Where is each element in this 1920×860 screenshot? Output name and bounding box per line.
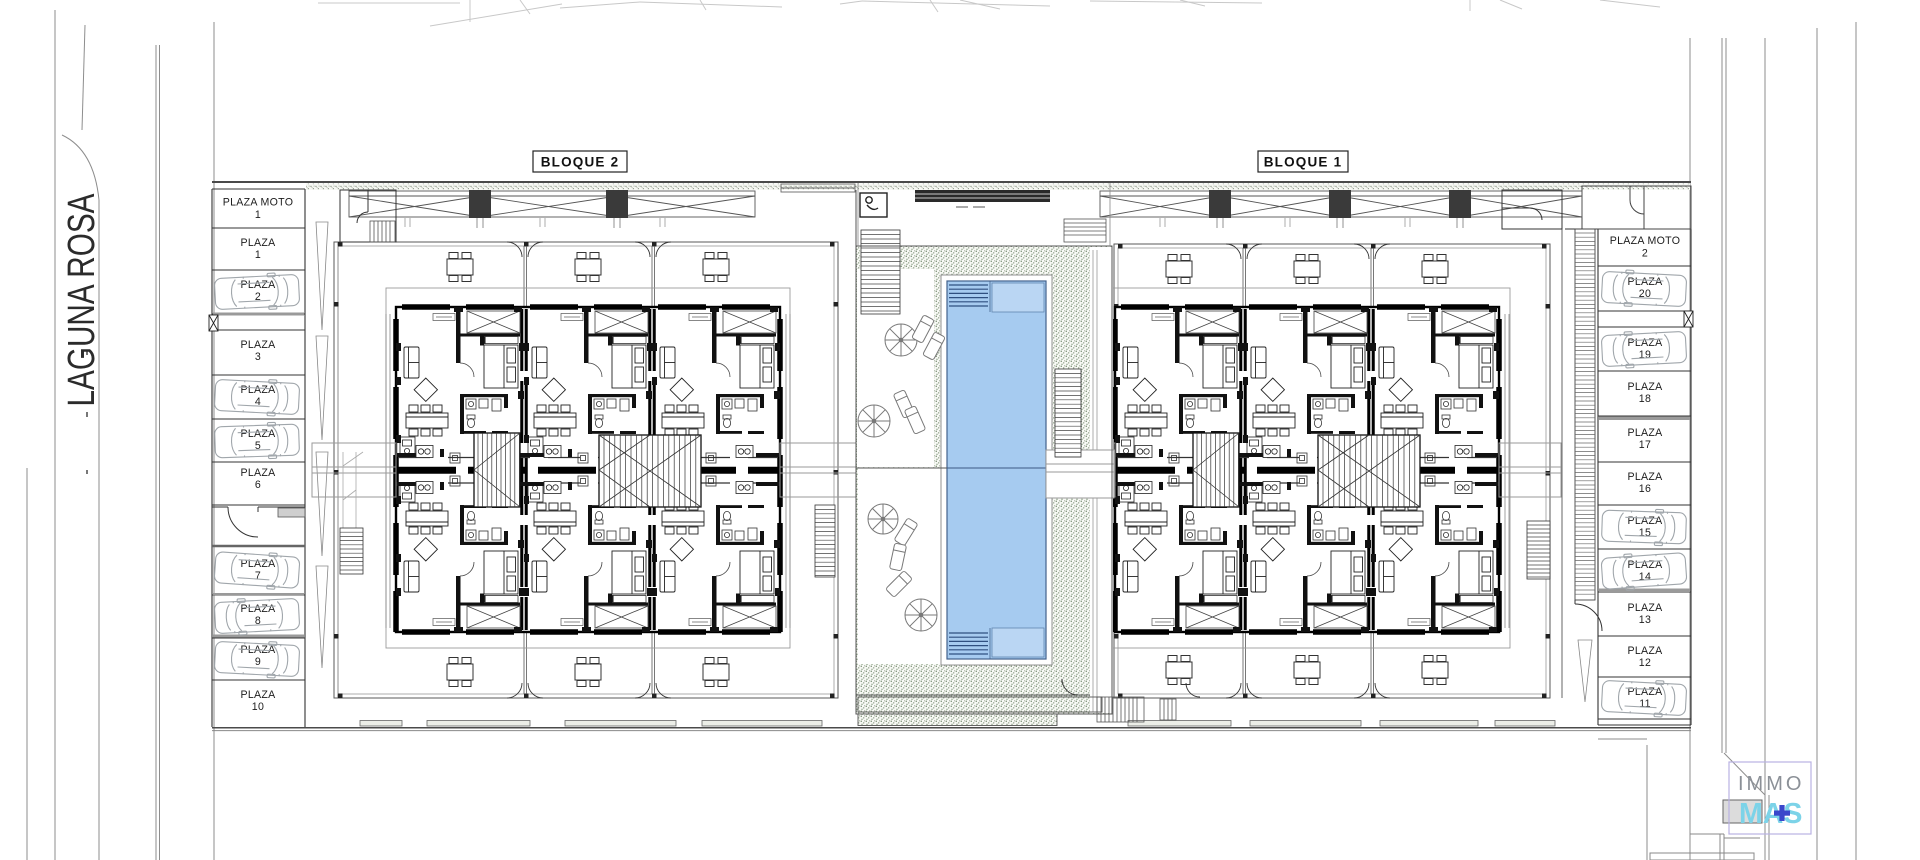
svg-text:2: 2	[1642, 248, 1648, 260]
svg-text:1: 1	[255, 249, 261, 261]
svg-text:PLAZA: PLAZA	[1627, 471, 1663, 483]
svg-text:15: 15	[1639, 527, 1651, 539]
svg-text:PLAZA: PLAZA	[1627, 686, 1663, 698]
svg-text:PLAZA: PLAZA	[1627, 427, 1663, 439]
svg-text:PLAZA: PLAZA	[1627, 381, 1663, 393]
svg-text:PLAZA: PLAZA	[1627, 602, 1663, 614]
svg-text:10: 10	[252, 701, 264, 713]
svg-text:PLAZA: PLAZA	[1627, 515, 1663, 527]
svg-text:PLAZA MOTO: PLAZA MOTO	[223, 197, 294, 209]
svg-text:PLAZA: PLAZA	[240, 428, 276, 440]
svg-text:BLOQUE 2: BLOQUE 2	[541, 155, 620, 170]
svg-text:12: 12	[1639, 657, 1651, 669]
svg-text:PLAZA: PLAZA	[1627, 645, 1663, 657]
svg-text:LAGUNA ROSA: LAGUNA ROSA	[61, 193, 103, 407]
svg-text:PLAZA: PLAZA	[240, 279, 276, 291]
svg-text:PLAZA: PLAZA	[240, 603, 276, 615]
svg-text:PLAZA: PLAZA	[240, 689, 276, 701]
svg-text:3: 3	[255, 351, 261, 363]
svg-text:PLAZA: PLAZA	[240, 237, 276, 249]
svg-text:11: 11	[1639, 698, 1651, 710]
svg-text:6: 6	[255, 479, 261, 491]
svg-text:19: 19	[1639, 349, 1651, 361]
svg-text:17: 17	[1639, 439, 1651, 451]
svg-text:1: 1	[255, 209, 261, 221]
svg-text:MAS: MAS	[1739, 798, 1802, 830]
svg-text:PLAZA: PLAZA	[240, 467, 276, 479]
svg-text:PLAZA: PLAZA	[240, 384, 276, 396]
svg-text:IMMO: IMMO	[1738, 773, 1804, 795]
svg-text:PLAZA: PLAZA	[240, 339, 276, 351]
svg-text:PLAZA: PLAZA	[1627, 276, 1663, 288]
svg-text:18: 18	[1639, 393, 1651, 405]
svg-text:7: 7	[255, 570, 261, 582]
svg-text:16: 16	[1639, 483, 1651, 495]
svg-text:9: 9	[255, 656, 261, 668]
svg-text:PLAZA MOTO: PLAZA MOTO	[1610, 235, 1681, 247]
svg-text:BLOQUE 1: BLOQUE 1	[1264, 155, 1343, 170]
svg-text:13: 13	[1639, 614, 1651, 626]
svg-text:14: 14	[1639, 571, 1651, 583]
